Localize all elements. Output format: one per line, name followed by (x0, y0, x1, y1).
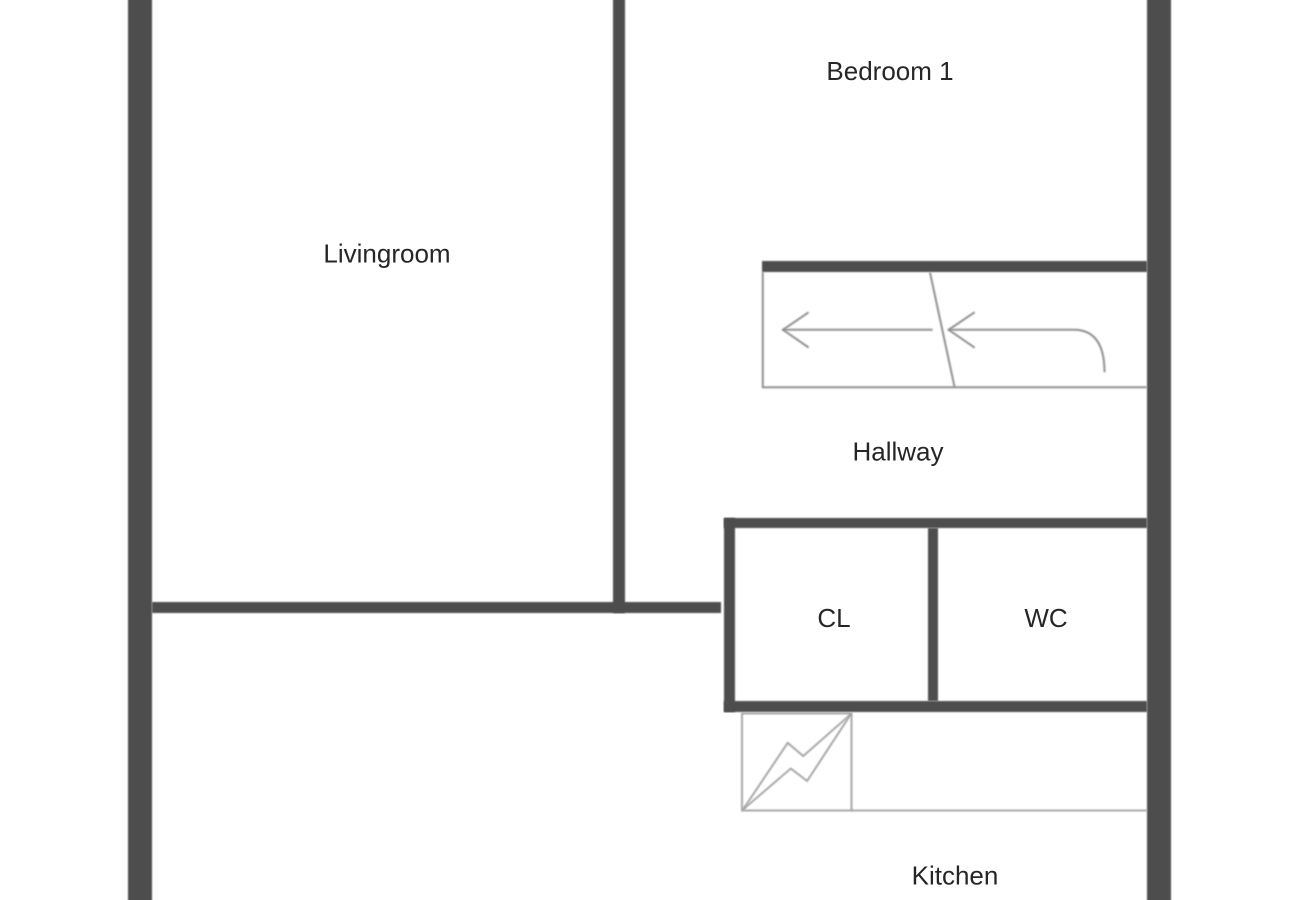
svg-text:Bedroom 1: Bedroom 1 (826, 56, 953, 86)
svg-text:Livingroom: Livingroom (323, 238, 450, 268)
svg-text:Kitchen: Kitchen (912, 861, 999, 891)
svg-text:WC: WC (1024, 603, 1067, 633)
svg-text:Hallway: Hallway (852, 437, 943, 467)
svg-text:CL: CL (817, 603, 850, 633)
